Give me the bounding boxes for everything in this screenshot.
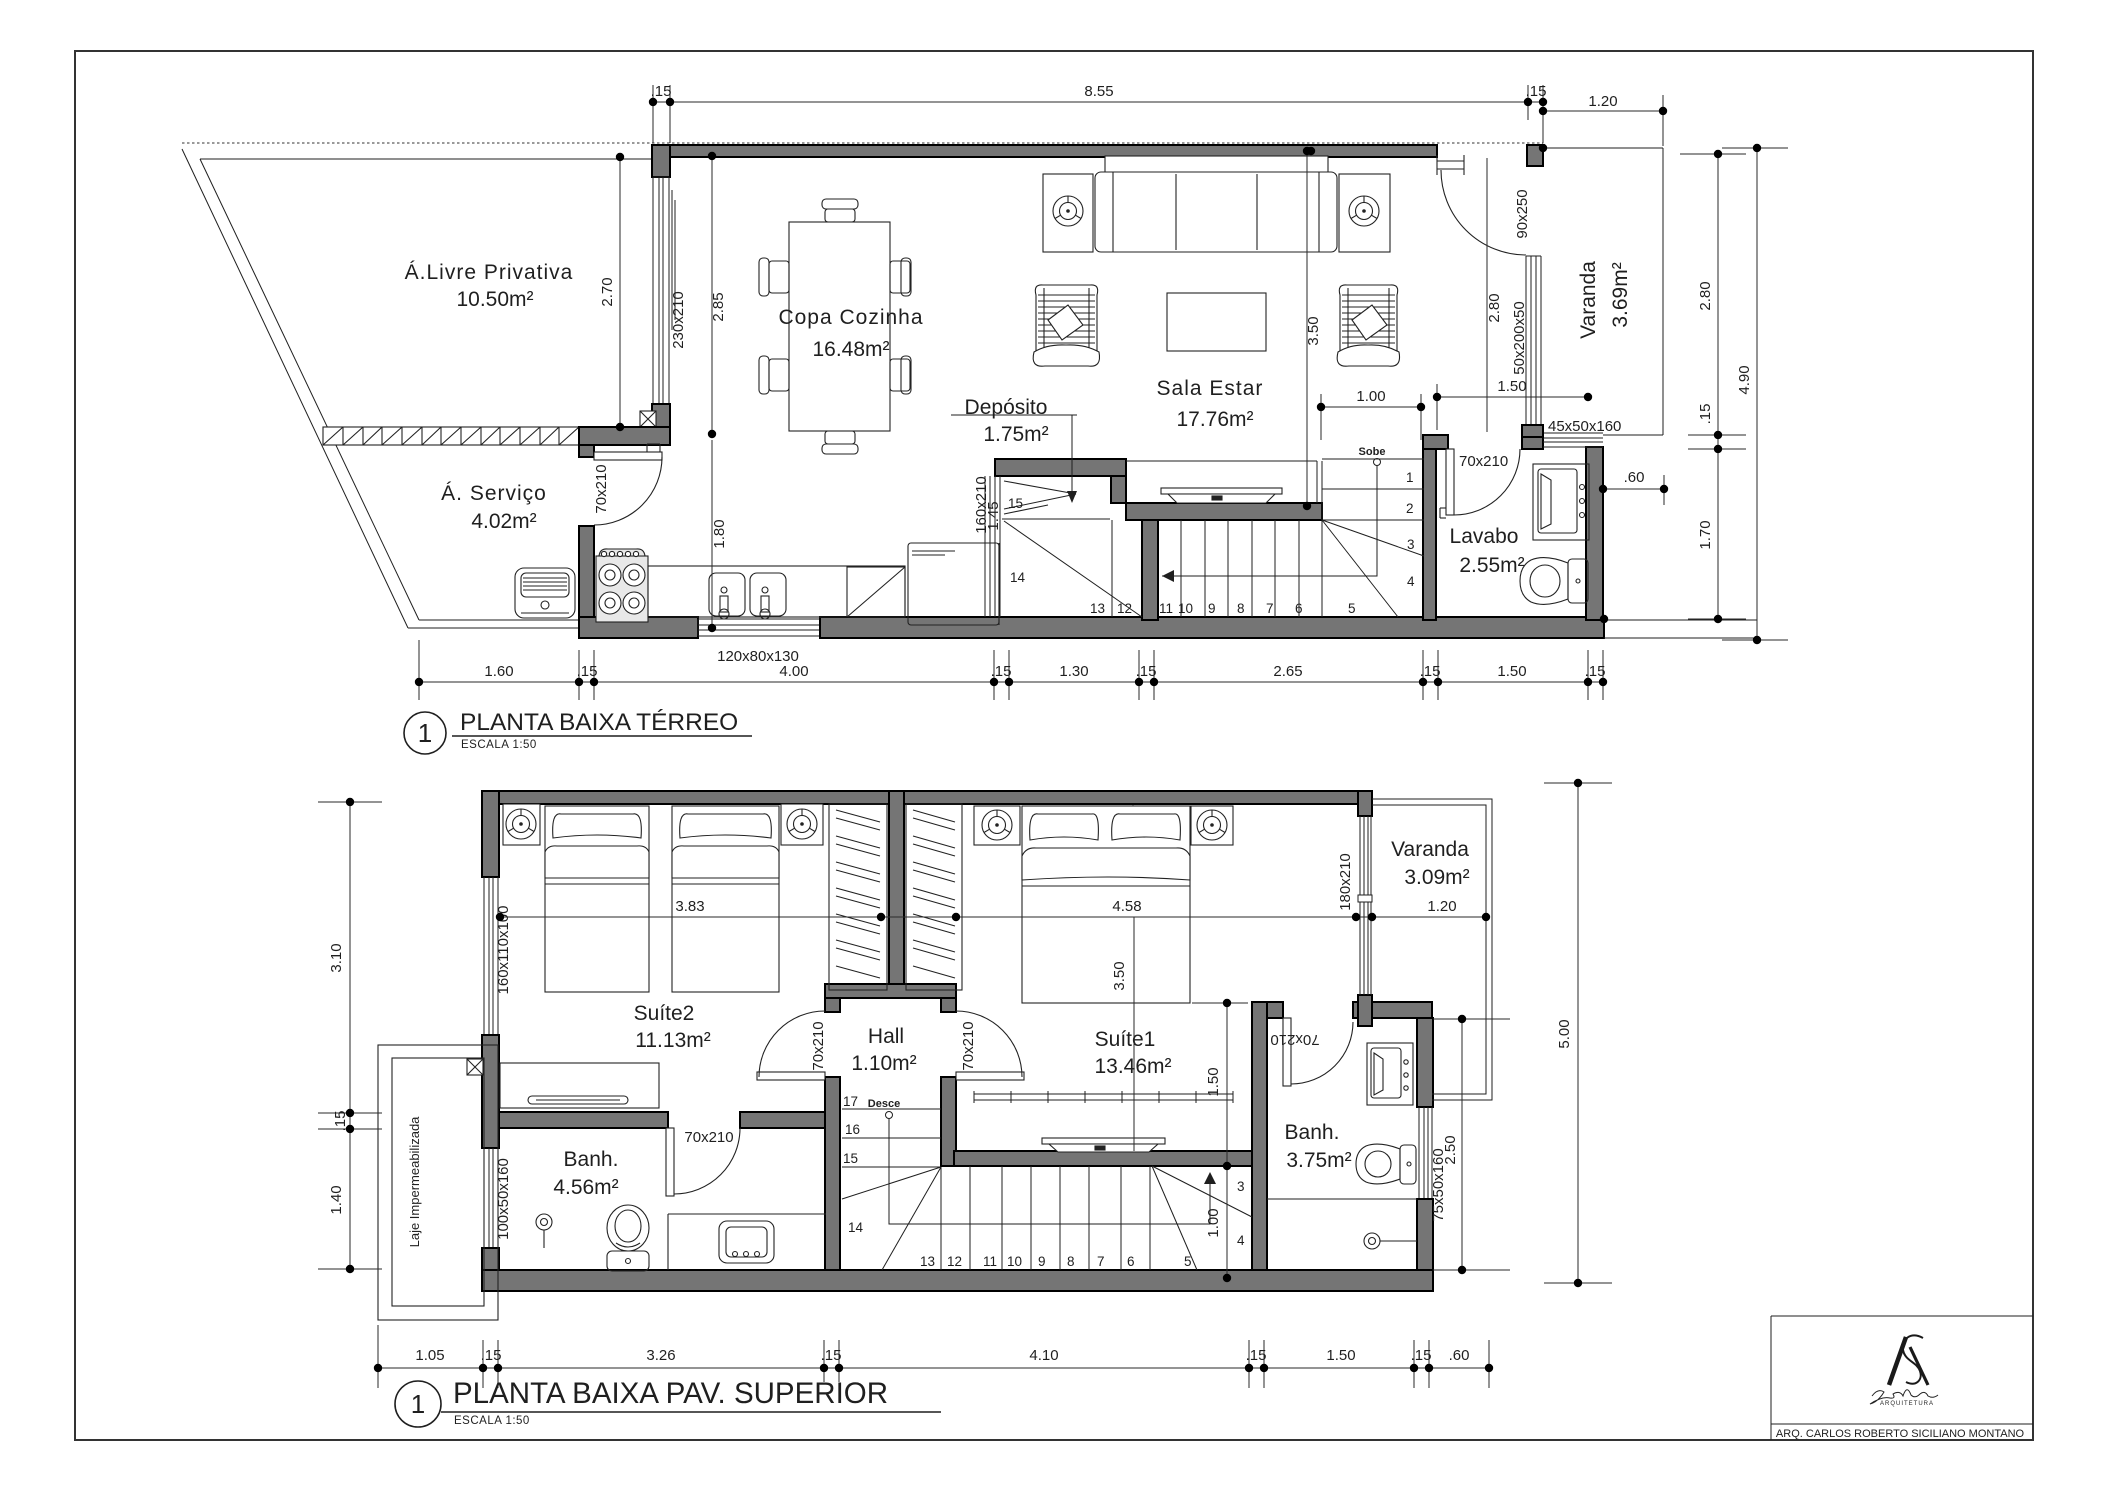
svg-text:1.50: 1.50: [1497, 663, 1526, 680]
svg-text:Á.Livre Privativa: Á.Livre Privativa: [405, 261, 574, 284]
svg-text:Varanda: Varanda: [1391, 838, 1469, 861]
svg-text:2.85: 2.85: [710, 292, 727, 321]
svg-text:1.70: 1.70: [1697, 520, 1714, 549]
svg-text:1.40: 1.40: [328, 1185, 345, 1214]
svg-text:5: 5: [1184, 1254, 1192, 1269]
svg-text:Banh.: Banh.: [564, 1148, 619, 1171]
svg-text:3.75m²: 3.75m²: [1286, 1149, 1351, 1172]
svg-text:230x210: 230x210: [670, 291, 687, 349]
svg-text:1.20: 1.20: [1427, 898, 1456, 915]
svg-text:5.00: 5.00: [1556, 1019, 1573, 1048]
svg-text:1.05: 1.05: [415, 1347, 444, 1364]
svg-text:4.58: 4.58: [1112, 898, 1141, 915]
svg-text:2: 2: [1406, 501, 1414, 516]
svg-text:.15: .15: [1246, 1347, 1267, 1364]
svg-text:1.80: 1.80: [711, 519, 728, 548]
svg-text:.15: .15: [577, 663, 598, 680]
svg-text:1.30: 1.30: [1059, 663, 1088, 680]
svg-text:.60: .60: [1449, 1347, 1470, 1364]
svg-text:70x210: 70x210: [810, 1021, 827, 1070]
svg-text:50x200x50: 50x200x50: [1511, 301, 1528, 374]
svg-text:3.10: 3.10: [328, 943, 345, 972]
svg-text:1.75m²: 1.75m²: [983, 423, 1048, 446]
svg-text:.15: .15: [332, 1111, 349, 1132]
svg-text:3.50: 3.50: [1111, 961, 1128, 990]
svg-text:1.20: 1.20: [1588, 93, 1617, 110]
svg-text:6: 6: [1295, 601, 1303, 616]
svg-text:2.80: 2.80: [1697, 281, 1714, 310]
svg-text:2.55m²: 2.55m²: [1459, 554, 1524, 577]
svg-text:Laje Impermeabilizada: Laje Impermeabilizada: [407, 1116, 422, 1248]
svg-text:15: 15: [843, 1151, 858, 1166]
svg-text:2.80: 2.80: [1486, 293, 1503, 322]
svg-text:Hall: Hall: [868, 1025, 904, 1048]
svg-text:Sobe: Sobe: [1359, 446, 1386, 458]
svg-text:12: 12: [947, 1254, 962, 1269]
svg-text:ARQUITETURA: ARQUITETURA: [1880, 1401, 1934, 1407]
svg-text:13: 13: [1090, 601, 1105, 616]
svg-text:2.50: 2.50: [1442, 1135, 1459, 1164]
svg-text:14: 14: [1010, 570, 1026, 585]
svg-text:7: 7: [1266, 601, 1274, 616]
svg-text:4: 4: [1407, 574, 1415, 589]
svg-text:.15: .15: [1420, 663, 1441, 680]
svg-text:4.00: 4.00: [779, 663, 808, 680]
svg-text:1.50: 1.50: [1205, 1067, 1222, 1096]
svg-text:1.10m²: 1.10m²: [851, 1052, 916, 1075]
svg-text:12: 12: [1117, 601, 1132, 616]
svg-text:8: 8: [1237, 601, 1245, 616]
svg-text:70x210: 70x210: [960, 1021, 977, 1070]
svg-text:Copa Cozinha: Copa Cozinha: [778, 306, 923, 329]
svg-text:9: 9: [1038, 1254, 1046, 1269]
svg-text:PLANTA BAIXA PAV. SUPERIOR: PLANTA BAIXA PAV. SUPERIOR: [453, 1377, 888, 1410]
svg-text:1.50: 1.50: [1497, 378, 1526, 395]
svg-text:.60: .60: [1624, 469, 1645, 486]
svg-text:1.50: 1.50: [1326, 1347, 1355, 1364]
svg-text:.15: .15: [481, 1347, 502, 1364]
svg-text:4.90: 4.90: [1736, 365, 1753, 394]
svg-text:4.02m²: 4.02m²: [471, 510, 536, 533]
svg-text:Lavabo: Lavabo: [1450, 525, 1519, 548]
svg-text:11.13m²: 11.13m²: [635, 1029, 710, 1052]
svg-text:.15: .15: [991, 663, 1012, 680]
svg-text:3.26: 3.26: [646, 1347, 675, 1364]
svg-text:.15: .15: [821, 1347, 842, 1364]
svg-text:45x50x160: 45x50x160: [1548, 418, 1621, 435]
svg-text:3.83: 3.83: [675, 898, 704, 915]
svg-text:Depósito: Depósito: [965, 396, 1048, 419]
svg-text:Suíte2: Suíte2: [634, 1002, 695, 1025]
svg-text:10: 10: [1007, 1254, 1022, 1269]
svg-text:15: 15: [1008, 496, 1023, 511]
svg-text:4: 4: [1237, 1233, 1245, 1248]
svg-text:11: 11: [1159, 601, 1173, 616]
svg-text:180x210: 180x210: [1337, 853, 1354, 911]
svg-text:.15: .15: [1697, 404, 1714, 425]
svg-text:11: 11: [983, 1254, 997, 1269]
svg-text:4.56m²: 4.56m²: [553, 1176, 618, 1199]
svg-text:.15: .15: [1585, 663, 1606, 680]
svg-text:7: 7: [1097, 1254, 1105, 1269]
svg-text:1.00: 1.00: [1356, 388, 1385, 405]
svg-text:1: 1: [411, 1389, 425, 1419]
svg-text:2.70: 2.70: [599, 277, 616, 306]
svg-text:8.55: 8.55: [1084, 83, 1113, 100]
svg-text:.15: .15: [651, 83, 672, 100]
svg-text:ARQ. CARLOS ROBERTO SICILIANO: ARQ. CARLOS ROBERTO SICILIANO MONTANO: [1776, 1428, 2025, 1440]
svg-text:90x250: 90x250: [1514, 189, 1531, 238]
svg-text:8: 8: [1067, 1254, 1075, 1269]
svg-text:3.09m²: 3.09m²: [1404, 866, 1469, 889]
svg-text:13.46m²: 13.46m²: [1094, 1055, 1171, 1078]
svg-text:70x210: 70x210: [1459, 453, 1508, 470]
svg-text:1.00: 1.00: [1205, 1208, 1222, 1237]
svg-text:16: 16: [845, 1122, 860, 1137]
svg-text:17.76m²: 17.76m²: [1176, 408, 1253, 431]
svg-text:.15: .15: [1526, 83, 1547, 100]
svg-text:5: 5: [1348, 601, 1356, 616]
svg-text:ESCALA 1:50: ESCALA 1:50: [461, 739, 537, 751]
svg-text:1.60: 1.60: [484, 663, 513, 680]
svg-text:3: 3: [1407, 537, 1415, 552]
svg-text:14: 14: [848, 1220, 864, 1235]
svg-text:4.10: 4.10: [1029, 1347, 1058, 1364]
svg-text:6: 6: [1127, 1254, 1135, 1269]
svg-text:13: 13: [920, 1254, 935, 1269]
svg-text:3.69m²: 3.69m²: [1609, 262, 1632, 327]
svg-text:.15: .15: [1411, 1347, 1432, 1364]
svg-text:17: 17: [843, 1094, 858, 1109]
svg-text:2.65: 2.65: [1273, 663, 1302, 680]
svg-text:1.45: 1.45: [985, 501, 1002, 530]
svg-text:Á. Serviço: Á. Serviço: [441, 482, 547, 505]
svg-text:70x210: 70x210: [684, 1129, 733, 1146]
svg-text:3: 3: [1237, 1179, 1245, 1194]
svg-text:1: 1: [418, 718, 432, 748]
svg-text:10.50m²: 10.50m²: [456, 288, 533, 311]
svg-text:100x50x160: 100x50x160: [495, 1158, 512, 1240]
svg-text:Desce: Desce: [868, 1098, 900, 1110]
svg-text:PLANTA BAIXA TÉRREO: PLANTA BAIXA TÉRREO: [460, 709, 738, 736]
svg-text:Suíte1: Suíte1: [1095, 1028, 1156, 1051]
svg-text:3.50: 3.50: [1305, 316, 1322, 345]
svg-text:Varanda: Varanda: [1577, 261, 1600, 339]
svg-text:9: 9: [1208, 601, 1216, 616]
svg-text:70x210: 70x210: [593, 464, 610, 513]
svg-text:1: 1: [1406, 470, 1414, 485]
svg-text:16.48m²: 16.48m²: [812, 338, 889, 361]
svg-text:.15: .15: [1136, 663, 1157, 680]
svg-text:Sala Estar: Sala Estar: [1157, 377, 1264, 400]
svg-text:Banh.: Banh.: [1285, 1121, 1340, 1144]
svg-text:70x210: 70x210: [1270, 1031, 1319, 1048]
svg-text:ESCALA 1:50: ESCALA 1:50: [454, 1415, 530, 1427]
svg-text:10: 10: [1178, 601, 1193, 616]
